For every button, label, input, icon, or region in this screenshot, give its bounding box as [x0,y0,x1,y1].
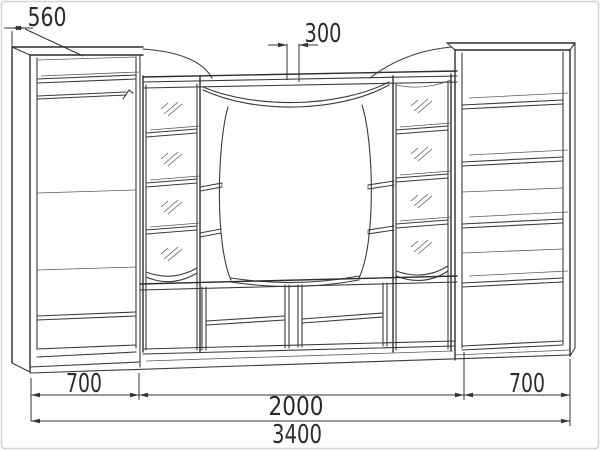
arrowhead [139,393,148,397]
left-wardrobe [12,47,143,372]
glass-hatch-icon [411,99,432,113]
niche-right-curve [359,105,371,278]
blueprint-canvas: 560 300 700 2000 700 3 [0,0,600,450]
arrowhead [464,393,473,397]
glass-column-shelf [146,126,200,137]
floor-line [30,355,570,373]
glass-hatch-icon [161,152,182,166]
arrowhead [31,419,40,423]
stand-divider [383,283,387,346]
wardrobe-bottom-shelf [37,312,136,320]
dim-label-700-right: 700 [509,369,545,399]
wardrobe-floor-board [30,345,140,367]
right-glass-column [393,74,451,352]
tv-niche [200,105,394,287]
bookshelf-shelf [462,212,568,228]
tv-stand [140,276,457,361]
dimension-700-left: 700 [31,369,139,399]
niche-left-curve [219,107,231,280]
stand-divider [202,287,206,350]
dimension-3400: 3400 [31,419,570,450]
glass-hatch-icon [161,102,182,116]
niche-side-shelf [200,183,222,191]
left-wing-curve [143,49,212,78]
dim-label-3400: 3400 [272,420,322,450]
glass-column-shelf [396,171,451,182]
arrowhead [278,43,287,47]
right-bookshelf [447,43,575,360]
stand-mid-shelf [302,313,383,323]
dim-label-560: 560 [28,3,67,33]
column-top-curve [396,80,451,87]
arrowhead [130,393,139,397]
glass-column-shelf [396,123,451,134]
bookshelf-shelf [462,93,568,109]
dim-label-300: 300 [305,19,342,49]
wave-valance [203,82,389,107]
glass-column-shelf [146,223,200,234]
niche-side-shelf [368,226,394,234]
arrowhead [31,393,40,397]
stand-divider [298,285,302,347]
furniture-drawing: 560 300 700 2000 700 3 [0,0,600,450]
dim-label-700-left: 700 [66,369,102,399]
arrowhead [561,419,570,423]
dimension-300: 300 [268,19,342,82]
arrowhead [455,393,464,397]
hanging-rail [38,90,133,99]
curved-shelf [396,266,448,275]
glass-hatch-icon [411,194,432,208]
glass-hatch-icon [411,240,432,254]
right-wing-curve [370,47,452,78]
stand-mid-shelf [206,316,285,325]
dimension-560: 560 [4,3,83,56]
glass-hatch-icon [161,200,182,214]
glass-column-shelf [146,176,200,187]
top-cornice [143,47,457,107]
bookshelf-shelf [462,150,568,166]
wardrobe-top-shelf [37,72,139,83]
glass-hatch-icon [161,247,182,261]
dimension-700-right: 700 [464,369,570,399]
stand-divider [285,285,289,348]
left-glass-column [143,76,200,352]
dim-label-2000: 2000 [269,392,324,422]
niche-side-shelf [200,229,221,237]
glass-column-shelf [396,217,451,228]
dimension-2000: 2000 [139,392,464,422]
bookshelf-floor-board [455,341,570,355]
glass-hatch-icon [411,147,432,161]
arrowhead [561,393,570,397]
curved-shelf [146,268,197,276]
bookshelf-shelf [462,271,568,287]
